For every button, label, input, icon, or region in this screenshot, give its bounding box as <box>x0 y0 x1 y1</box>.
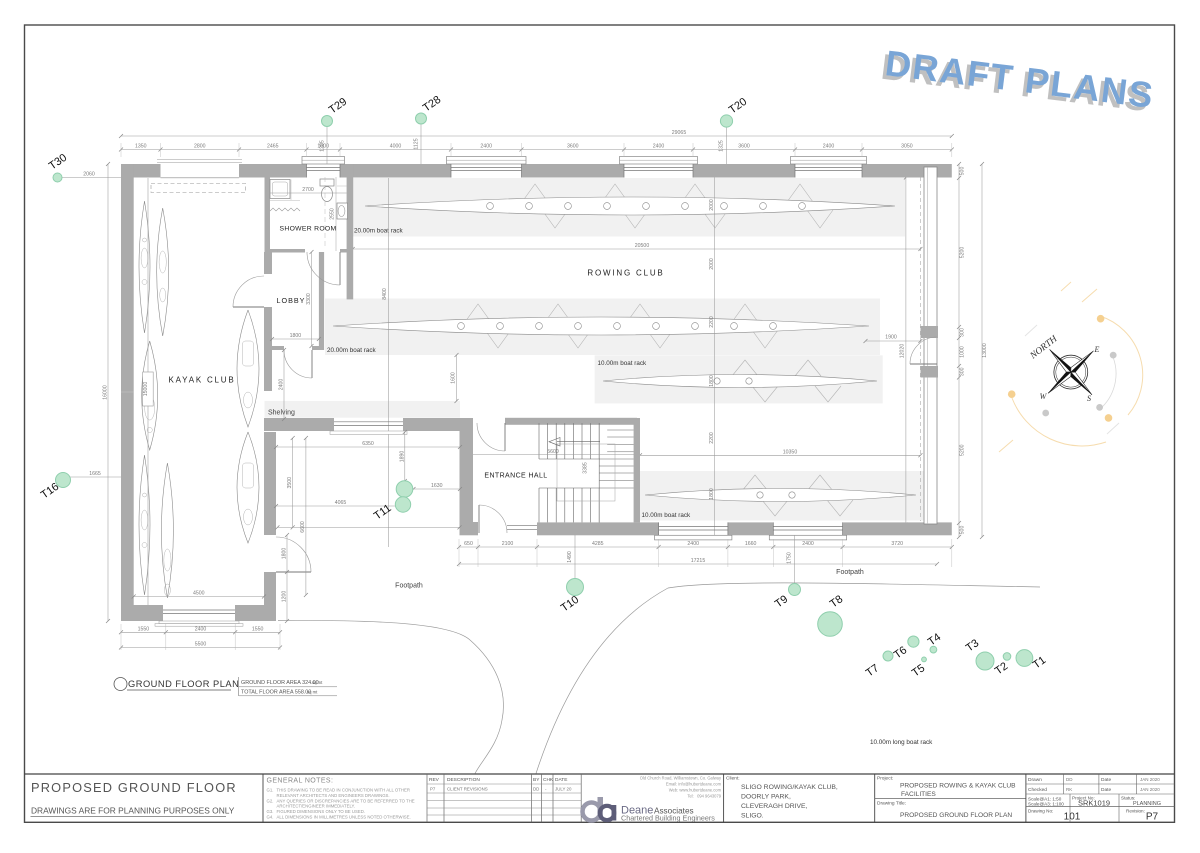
svg-text:2000: 2000 <box>709 199 715 211</box>
svg-text:DD: DD <box>533 787 539 792</box>
svg-text:1630: 1630 <box>431 483 443 489</box>
svg-text:4065: 4065 <box>335 500 347 506</box>
svg-text:G2.: G2. <box>267 798 274 803</box>
svg-text:6350: 6350 <box>362 441 374 447</box>
svg-text:500: 500 <box>960 526 966 535</box>
svg-text:1285: 1285 <box>320 140 326 152</box>
svg-text:1800: 1800 <box>709 375 715 387</box>
svg-text:1550: 1550 <box>252 627 264 633</box>
svg-text:SLIGO ROWING/KAYAK CLUB,: SLIGO ROWING/KAYAK CLUB, <box>741 784 838 791</box>
svg-text:RELEVANT ARCHITECTS AND ENGINE: RELEVANT ARCHITECTS AND ENGINEERS DRAWIN… <box>277 793 390 798</box>
svg-text:2060: 2060 <box>83 172 95 178</box>
svg-text:Scale@A3: 1:100: Scale@A3: 1:100 <box>1028 802 1064 807</box>
svg-text:SLIGO.: SLIGO. <box>741 813 764 820</box>
svg-text:5600: 5600 <box>547 449 559 455</box>
svg-text:DD: DD <box>1066 777 1073 782</box>
svg-text:Tel: 094 9643079: Tel: 094 9643079 <box>687 794 721 799</box>
svg-text:PROPOSED GROUND FLOOR PLAN: PROPOSED GROUND FLOOR PLAN <box>900 812 1012 819</box>
svg-text:KAYAK CLUB: KAYAK CLUB <box>168 376 235 385</box>
svg-text:2000: 2000 <box>709 258 715 270</box>
svg-text:Drawing No:: Drawing No: <box>1028 809 1053 814</box>
svg-text:BY: BY <box>533 777 540 783</box>
svg-text:650: 650 <box>464 541 473 547</box>
svg-text:JAN 2020: JAN 2020 <box>1140 787 1160 792</box>
svg-text:2400: 2400 <box>823 144 835 150</box>
svg-text:Footpath: Footpath <box>836 569 864 576</box>
svg-text:10.00m long boat rack: 10.00m long boat rack <box>870 739 933 746</box>
svg-text:15000: 15000 <box>143 382 149 397</box>
svg-text:2465: 2465 <box>267 144 279 150</box>
svg-text:3300: 3300 <box>306 293 312 305</box>
svg-text:1125: 1125 <box>414 138 420 149</box>
svg-text:20.00m boat rack: 20.00m boat rack <box>354 228 404 235</box>
svg-text:ROWING CLUB: ROWING CLUB <box>587 269 664 278</box>
svg-text:13000: 13000 <box>982 343 988 358</box>
svg-text:2400: 2400 <box>653 144 665 150</box>
svg-text:2100: 2100 <box>502 541 514 547</box>
svg-text:300: 300 <box>960 367 966 376</box>
svg-text:1350: 1350 <box>135 144 147 150</box>
svg-text:GROUND FLOOR PLAN: GROUND FLOOR PLAN <box>128 679 239 689</box>
svg-text:2200: 2200 <box>709 316 715 328</box>
svg-text:ENTRANCE HALL: ENTRANCE HALL <box>484 473 547 480</box>
svg-text:3050: 3050 <box>901 144 913 150</box>
svg-text:GENERAL NOTES:: GENERAL NOTES: <box>267 778 334 785</box>
svg-text:2550: 2550 <box>330 208 336 220</box>
svg-text:Old Church Road, Williamstown,: Old Church Road, Williamstown, Co. Galwa… <box>640 776 722 781</box>
svg-text:1800: 1800 <box>709 488 715 500</box>
svg-text:20500: 20500 <box>635 243 650 249</box>
svg-text:5200: 5200 <box>960 247 966 259</box>
svg-text:G3.: G3. <box>267 809 274 814</box>
svg-text:2400: 2400 <box>195 627 207 633</box>
svg-text:REV: REV <box>429 777 440 783</box>
svg-text:G4.: G4. <box>267 815 274 820</box>
svg-text:4000: 4000 <box>390 144 402 150</box>
svg-text:LOBBY: LOBBY <box>277 296 306 305</box>
svg-text:2400: 2400 <box>802 541 814 547</box>
svg-text:1665: 1665 <box>89 471 101 477</box>
svg-text:4285: 4285 <box>592 541 604 547</box>
svg-text:ARCHITECT/ENGINEER IMMEDIATELY: ARCHITECT/ENGINEER IMMEDIATELY. <box>277 804 356 809</box>
svg-text:ALL DIMENSIONS IN MILLIMETRES: ALL DIMENSIONS IN MILLIMETRES UNLESS NOT… <box>277 815 411 820</box>
svg-text:3720: 3720 <box>891 541 903 547</box>
svg-text:2700: 2700 <box>302 187 314 193</box>
svg-text:DATE: DATE <box>555 777 567 783</box>
svg-text:16000: 16000 <box>103 385 109 400</box>
svg-text:FIGURED DIMENSIONS ONLY TO BE: FIGURED DIMENSIONS ONLY TO BE USED. <box>277 809 366 814</box>
svg-text:1000: 1000 <box>960 346 966 358</box>
svg-text:2400: 2400 <box>279 379 285 391</box>
svg-text:CHK: CHK <box>543 777 554 783</box>
svg-text:Checked: Checked <box>1028 787 1047 793</box>
svg-text:1600: 1600 <box>451 372 457 384</box>
svg-text:S: S <box>1087 394 1091 403</box>
svg-text:Web: www.hubertdeane.com: Web: www.hubertdeane.com <box>669 788 722 793</box>
svg-text:Drawing Title:: Drawing Title: <box>877 801 906 807</box>
svg-text:Shelving: Shelving <box>268 410 295 417</box>
svg-text:Footpath: Footpath <box>395 583 423 590</box>
svg-text:GROUND FLOOR AREA 324.00: GROUND FLOOR AREA 324.00 <box>241 680 319 686</box>
svg-text:DOORLY PARK,: DOORLY PARK, <box>741 794 791 801</box>
svg-text:PROPOSED ROWING & KAYAK CLUB: PROPOSED ROWING & KAYAK CLUB <box>900 783 1016 790</box>
svg-text:ANY QUERIES OR DISCREPANCIES A: ANY QUERIES OR DISCREPANCIES ARE TO BE R… <box>277 798 415 803</box>
svg-text:sq mt: sq mt <box>307 689 318 694</box>
svg-text:Client:: Client: <box>726 776 740 782</box>
svg-text:Revision:: Revision: <box>1126 809 1145 814</box>
svg-text:29065: 29065 <box>672 130 687 136</box>
svg-text:Status:: Status: <box>1121 796 1135 801</box>
svg-text:FACILITIES: FACILITIES <box>901 791 936 798</box>
svg-text:THIS DRAWING TO BE READ IN CON: THIS DRAWING TO BE READ IN CONJUNCTION W… <box>277 788 410 793</box>
svg-text:Email: info@hubertdeane.com: Email: info@hubertdeane.com <box>666 782 722 787</box>
svg-text:TOTAL FLOOR AREA 558.00: TOTAL FLOOR AREA 558.00 <box>241 689 311 695</box>
svg-text:3600: 3600 <box>738 144 750 150</box>
svg-text:SHOWER ROOM: SHOWER ROOM <box>280 226 337 233</box>
svg-text:Project:: Project: <box>877 776 893 782</box>
svg-text:2400: 2400 <box>480 144 492 150</box>
svg-text:1200: 1200 <box>282 591 288 603</box>
svg-text:Date: Date <box>1101 787 1111 793</box>
svg-text:P7: P7 <box>1146 812 1159 823</box>
svg-text:P7: P7 <box>430 787 436 792</box>
svg-text:sq mt: sq mt <box>312 680 323 685</box>
svg-text:RK: RK <box>1066 787 1072 792</box>
svg-text:10350: 10350 <box>783 449 798 455</box>
svg-text:3385: 3385 <box>583 462 589 474</box>
svg-text:1800: 1800 <box>282 548 288 560</box>
svg-text:3500: 3500 <box>287 477 293 489</box>
svg-text:DESCRIPTION: DESCRIPTION <box>447 777 480 783</box>
svg-text:1900: 1900 <box>885 335 897 341</box>
svg-text:12020: 12020 <box>900 344 906 359</box>
svg-text:17215: 17215 <box>691 558 706 564</box>
svg-text:1325: 1325 <box>719 140 725 152</box>
svg-text:E: E <box>1094 345 1100 354</box>
svg-text:JAN 2020: JAN 2020 <box>1140 777 1160 782</box>
svg-text:1890: 1890 <box>399 451 405 463</box>
svg-text:1800: 1800 <box>290 333 302 339</box>
svg-text:6600: 6600 <box>300 521 306 533</box>
svg-text:4500: 4500 <box>193 591 205 597</box>
svg-text:CLEVERAGH DRIVE,: CLEVERAGH DRIVE, <box>741 803 808 810</box>
svg-text:5500: 5500 <box>195 642 207 648</box>
svg-text:20.00m boat rack: 20.00m boat rack <box>327 347 377 354</box>
svg-text:1750: 1750 <box>787 552 793 564</box>
svg-text:1660: 1660 <box>745 541 757 547</box>
svg-text:500: 500 <box>960 167 966 176</box>
svg-text:Chartered Building Engineers: Chartered Building Engineers <box>621 814 715 823</box>
svg-text:Date: Date <box>1101 777 1111 783</box>
svg-text:CLIENT REVISIONS: CLIENT REVISIONS <box>447 787 488 792</box>
svg-text:2800: 2800 <box>194 144 206 150</box>
svg-text:PLANNING: PLANNING <box>1133 801 1161 807</box>
svg-text:3600: 3600 <box>567 144 579 150</box>
svg-text:SRK1019: SRK1019 <box>1078 799 1110 808</box>
svg-text:300: 300 <box>960 328 966 337</box>
svg-text:DRAWINGS ARE FOR PLANNING PURP: DRAWINGS ARE FOR PLANNING PURPOSES ONLY <box>31 806 235 816</box>
svg-text:5200: 5200 <box>960 444 966 456</box>
svg-text:G1.: G1. <box>267 788 274 793</box>
svg-text:2400: 2400 <box>687 541 699 547</box>
svg-text:2200: 2200 <box>709 432 715 444</box>
svg-text:Drawn: Drawn <box>1028 777 1042 783</box>
svg-text:1490: 1490 <box>567 551 573 563</box>
svg-text:8400: 8400 <box>382 288 388 300</box>
svg-text:10.00m boat rack: 10.00m boat rack <box>642 512 692 519</box>
svg-text:1550: 1550 <box>138 627 150 633</box>
svg-text:10.00m boat rack: 10.00m boat rack <box>598 360 648 367</box>
svg-text:101: 101 <box>1064 812 1081 823</box>
svg-text:PROPOSED GROUND FLOOR: PROPOSED GROUND FLOOR <box>31 780 237 795</box>
svg-text:JULY 20: JULY 20 <box>555 787 572 792</box>
